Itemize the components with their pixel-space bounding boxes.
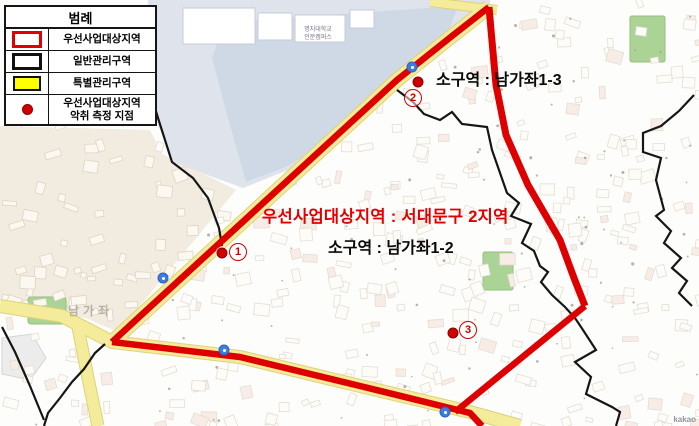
transit-station-icon (407, 62, 418, 73)
transit-station-icon (219, 345, 230, 356)
measurement-point-number-3: 3 (459, 321, 477, 339)
legend-row-3: 우선사업대상지역악취 측정 지점 (6, 95, 155, 124)
legend: 범례 우선사업대상지역일반관리구역특별관리구역우선사업대상지역악취 측정 지점 (4, 5, 157, 126)
red-dot-swatch (6, 95, 49, 124)
legend-row-0: 우선사업대상지역 (6, 29, 155, 51)
park-area (630, 16, 665, 62)
red-dot-symbol (22, 104, 33, 115)
legend-row-1: 일반관리구역 (6, 51, 155, 73)
red-outline-symbol (12, 31, 42, 48)
map-screenshot: 명지대학교 인문캠퍼스 (0, 0, 699, 426)
measurement-point-number-1: 1 (229, 243, 247, 261)
district-name-watermark: 남가좌 (68, 302, 113, 319)
campus-label-line1: 명지대학교 (304, 25, 332, 33)
label-priority-area-seodaemun-2: 우선사업대상지역 : 서대문구 2지역 (262, 203, 509, 227)
yellow-fill-symbol (13, 76, 41, 91)
black-outline-swatch (6, 51, 49, 72)
measurement-point-dot-3 (448, 328, 459, 339)
label-subzone-namgajwa-1-2: 소구역 : 남가좌1-2 (328, 234, 454, 258)
legend-item-label: 우선사업대상지역 (49, 29, 155, 50)
measurement-point-dot-1 (217, 248, 228, 259)
legend-item-label: 특별관리구역 (49, 73, 155, 94)
legend-row-2: 특별관리구역 (6, 73, 155, 95)
transit-station-icon (440, 407, 451, 418)
black-outline-symbol (12, 53, 42, 70)
label-subzone-namgajwa-1-3: 소구역 : 남가좌1-3 (436, 66, 562, 90)
campus-label-line2: 인문캠퍼스 (304, 33, 332, 41)
measurement-point-dot-2 (413, 77, 424, 88)
red-outline-swatch (6, 29, 49, 50)
yellow-fill-swatch (6, 73, 49, 94)
legend-item-label: 일반관리구역 (49, 51, 155, 72)
legend-title: 범례 (6, 7, 155, 29)
legend-item-label: 우선사업대상지역악취 측정 지점 (49, 95, 155, 124)
map-attribution: kakao (673, 415, 696, 424)
transit-station-icon (158, 273, 169, 284)
measurement-point-number-2: 2 (404, 89, 422, 107)
